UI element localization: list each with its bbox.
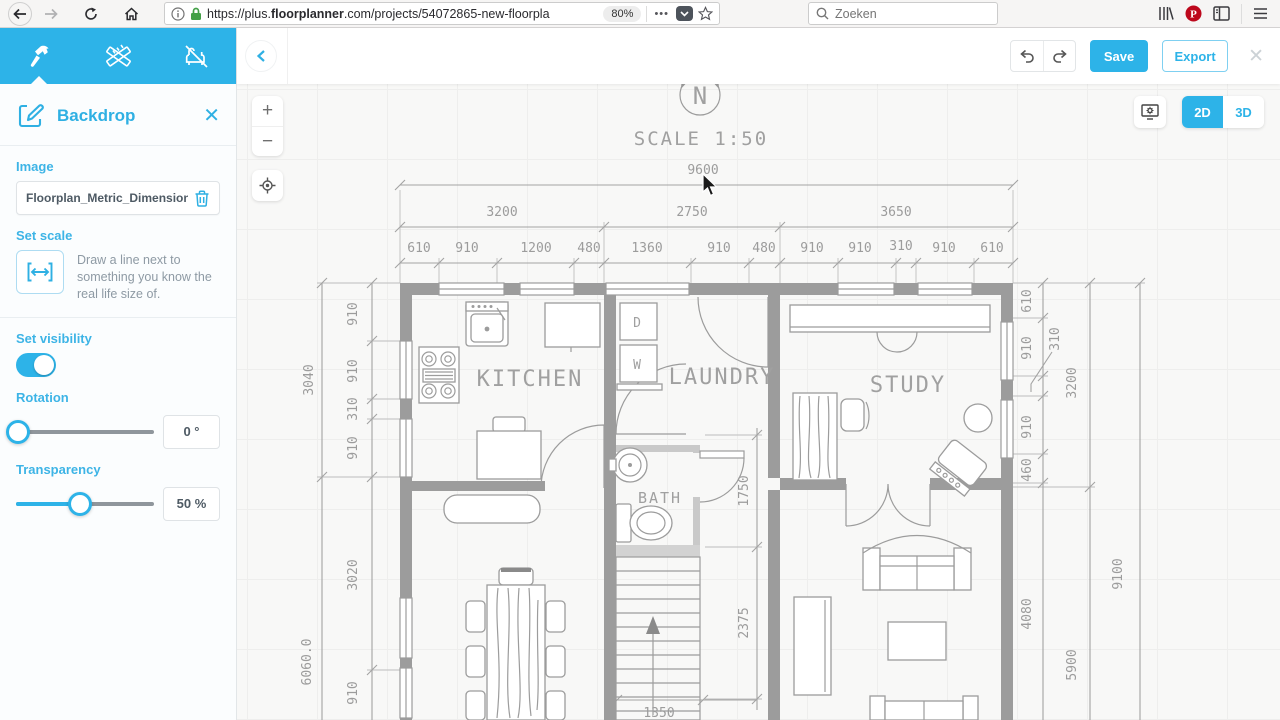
rotation-slider[interactable] <box>16 419 154 445</box>
view-settings-button[interactable] <box>1134 96 1166 128</box>
visibility-toggle[interactable] <box>16 353 56 377</box>
app-toolbar: Save Export ✕ <box>237 28 1280 84</box>
set-scale-label: Set scale <box>16 228 220 243</box>
tab-measure[interactable] <box>79 28 158 84</box>
view-3d-button[interactable]: 3D <box>1223 96 1264 128</box>
svg-text:1350: 1350 <box>643 706 674 720</box>
svg-text:SCALE 1:50: SCALE 1:50 <box>634 128 768 150</box>
chevron-left-icon <box>256 50 266 62</box>
furniture-off-icon <box>183 43 210 70</box>
svg-text:310: 310 <box>346 397 361 420</box>
home-icon <box>124 7 139 21</box>
study-furniture <box>790 305 992 496</box>
transparency-value: 50 % <box>163 487 220 521</box>
browser-reload-button[interactable] <box>78 2 104 26</box>
browser-back-button[interactable] <box>8 2 32 26</box>
backdrop-floorplan-drawing: N <box>237 84 1280 720</box>
svg-text:P: P <box>1190 9 1197 21</box>
visibility-label: Set visibility <box>16 331 220 346</box>
display-settings-icon <box>1141 104 1159 120</box>
rotation-label: Rotation <box>16 390 220 405</box>
browser-home-button[interactable] <box>118 2 144 26</box>
svg-text:910: 910 <box>707 241 730 256</box>
svg-text:910: 910 <box>346 302 361 325</box>
transparency-slider-knob[interactable] <box>68 492 92 516</box>
redo-button[interactable] <box>1043 41 1075 71</box>
backdrop-image-name: Floorplan_Metric_Dimensions... <box>26 191 188 205</box>
svg-text:910: 910 <box>932 241 955 256</box>
crosshair-icon <box>259 177 276 194</box>
backdrop-image-field[interactable]: Floorplan_Metric_Dimensions... <box>16 181 220 215</box>
compass-north-icon: N <box>680 84 720 115</box>
svg-text:1750: 1750 <box>737 475 752 506</box>
svg-text:D: D <box>633 316 643 331</box>
browser-search-bar[interactable] <box>808 2 998 25</box>
backdrop-panel: Backdrop ✕ Image Floorplan_Metric_Dimens… <box>0 84 236 720</box>
page-actions-icon[interactable]: ••• <box>652 8 671 20</box>
set-scale-button[interactable] <box>16 250 64 294</box>
export-button[interactable]: Export <box>1162 40 1228 72</box>
url-bar[interactable]: https://plus.floorplanner.com/projects/5… <box>164 2 720 25</box>
page-zoom-badge[interactable]: 80% <box>603 6 641 22</box>
svg-text:480: 480 <box>752 241 775 256</box>
svg-text:310: 310 <box>1048 327 1063 350</box>
undo-icon <box>1019 50 1035 63</box>
search-input[interactable] <box>835 7 965 21</box>
redo-icon <box>1052 50 1068 63</box>
stairs <box>616 545 700 720</box>
https-lock-icon[interactable] <box>190 7 202 21</box>
svg-text:610: 610 <box>407 241 430 256</box>
reload-icon <box>84 7 98 21</box>
svg-text:480: 480 <box>577 241 600 256</box>
svg-text:KITCHEN: KITCHEN <box>477 367 584 392</box>
page-info-icon[interactable] <box>171 7 185 21</box>
transparency-label: Transparency <box>16 462 220 477</box>
svg-text:610: 610 <box>980 241 1003 256</box>
svg-text:W: W <box>633 358 643 373</box>
trash-icon[interactable] <box>194 190 210 207</box>
set-scale-help: Draw a line next to something you know t… <box>77 250 220 303</box>
library-icon[interactable] <box>1158 6 1174 21</box>
svg-text:910: 910 <box>1020 336 1035 359</box>
backdrop-edit-icon <box>16 101 46 131</box>
svg-text:6060.0: 6060.0 <box>300 639 315 686</box>
svg-text:N: N <box>693 84 707 110</box>
svg-text:910: 910 <box>1020 415 1035 438</box>
menu-hamburger-icon[interactable] <box>1253 7 1268 20</box>
view-mode-toggle: 2D 3D <box>1182 96 1264 128</box>
svg-text:2375: 2375 <box>737 607 752 638</box>
svg-text:2750: 2750 <box>676 205 707 220</box>
svg-text:3020: 3020 <box>346 559 361 590</box>
forward-arrow-icon <box>44 8 58 20</box>
zoom-out-button[interactable]: − <box>252 126 283 156</box>
scale-arrows-icon <box>27 262 53 282</box>
svg-text:3200: 3200 <box>1065 367 1080 398</box>
bookmark-star-icon[interactable] <box>698 6 713 21</box>
tab-no-furniture[interactable] <box>157 28 236 84</box>
rotation-slider-knob[interactable] <box>6 420 30 444</box>
svg-text:1360: 1360 <box>631 241 662 256</box>
svg-text:4080: 4080 <box>1020 598 1035 629</box>
svg-text:910: 910 <box>800 241 823 256</box>
svg-text:910: 910 <box>346 681 361 704</box>
zoom-in-button[interactable]: + <box>252 96 283 126</box>
hammer-icon <box>26 43 52 69</box>
panel-title: Backdrop <box>57 106 192 126</box>
svg-text:3200: 3200 <box>486 205 517 220</box>
tab-construction[interactable] <box>0 28 79 84</box>
svg-text:3040: 3040 <box>302 364 317 395</box>
svg-text:310: 310 <box>889 239 912 254</box>
svg-text:910: 910 <box>346 436 361 459</box>
back-arrow-icon <box>13 8 27 20</box>
svg-text:1200: 1200 <box>520 241 551 256</box>
view-2d-button[interactable]: 2D <box>1182 96 1223 128</box>
svg-text:9100: 9100 <box>1111 558 1126 589</box>
svg-text:910: 910 <box>346 359 361 382</box>
living-furniture <box>794 536 978 720</box>
svg-text:BATH: BATH <box>638 489 682 507</box>
sidebars-icon[interactable] <box>1213 6 1230 21</box>
image-label: Image <box>16 159 220 174</box>
toolbar-close-button[interactable]: ✕ <box>1242 45 1270 68</box>
tool-tabbar <box>0 28 236 84</box>
svg-text:5900: 5900 <box>1065 649 1080 680</box>
browser-forward-button[interactable] <box>38 2 64 26</box>
rotation-value: 0 ° <box>163 415 220 449</box>
svg-text:910: 910 <box>455 241 478 256</box>
ruler-pencil-icon <box>105 43 132 70</box>
search-icon <box>816 7 829 20</box>
dining-furniture <box>466 568 565 720</box>
browser-chrome: https://plus.floorplanner.com/projects/5… <box>0 0 1280 28</box>
pocket-icon[interactable] <box>676 6 693 21</box>
svg-text:910: 910 <box>848 241 871 256</box>
center-view-button[interactable] <box>252 170 283 201</box>
svg-text:460: 460 <box>1020 458 1035 481</box>
svg-text:3650: 3650 <box>880 205 911 220</box>
panel-close-button[interactable]: ✕ <box>203 106 220 126</box>
left-sidebar: Backdrop ✕ Image Floorplan_Metric_Dimens… <box>0 28 237 720</box>
save-button[interactable]: Save <box>1090 40 1148 72</box>
floorplan-canvas[interactable]: N <box>237 84 1280 720</box>
pinterest-icon[interactable]: P <box>1185 5 1202 22</box>
svg-text:LAUNDRY: LAUNDRY <box>669 365 776 390</box>
zoom-controls: + − <box>252 96 283 156</box>
project-back-button[interactable] <box>245 40 277 72</box>
svg-text:610: 610 <box>1020 289 1035 312</box>
url-text: https://plus.floorplanner.com/projects/5… <box>207 7 598 21</box>
svg-text:STUDY: STUDY <box>870 373 946 398</box>
transparency-slider[interactable] <box>16 491 154 517</box>
undo-button[interactable] <box>1011 41 1043 71</box>
